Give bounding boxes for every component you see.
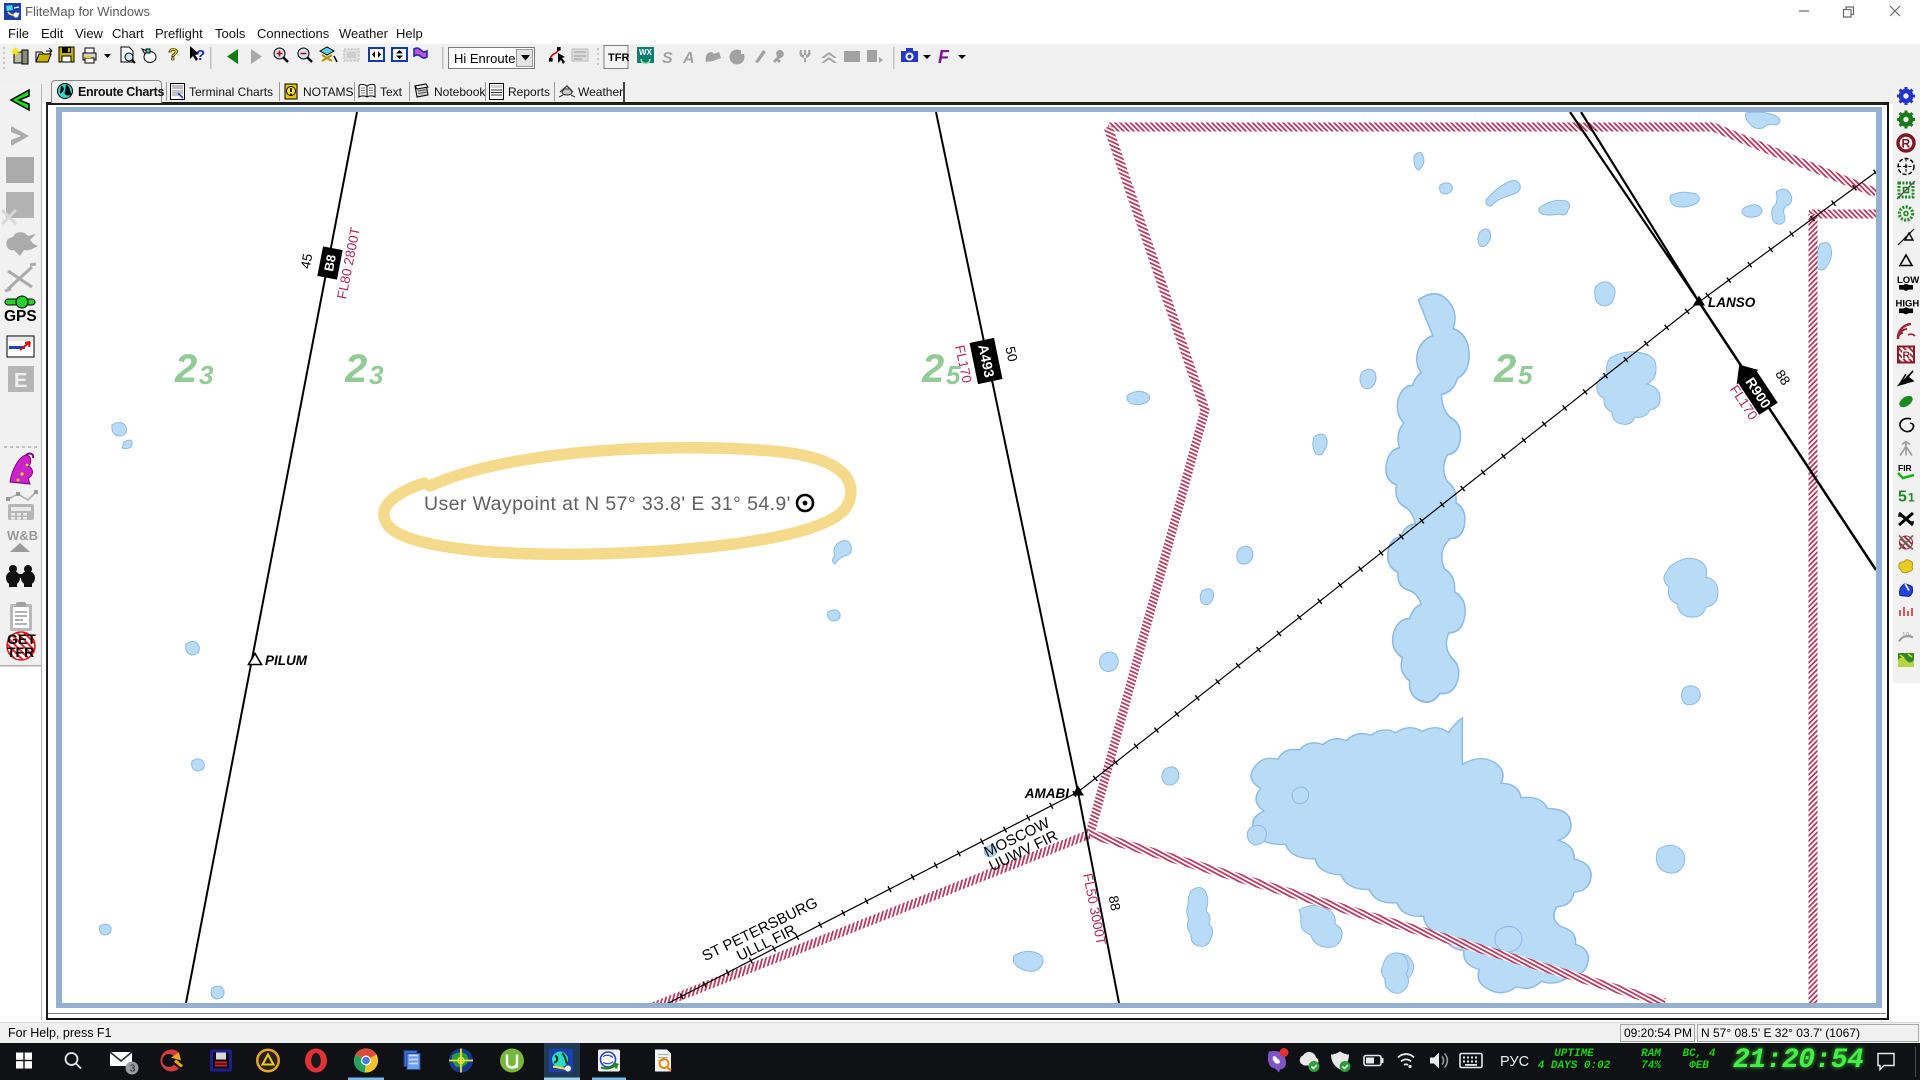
svg-text:TFR: TFR [7,644,34,660]
svg-text:W&B: W&B [7,528,38,543]
svg-text:FL50 3000T: FL50 3000T [1080,872,1109,946]
svg-text:5: 5 [946,360,961,390]
svg-text:GPS: GPS [4,308,37,325]
svg-text:E: E [14,370,27,392]
svg-text:3: 3 [199,360,214,390]
svg-text:10-: 10- [1902,632,1911,639]
svg-text:TFR: TFR [608,52,629,64]
svg-text:45: 45 [298,252,316,270]
svg-text:FIR: FIR [1898,463,1912,473]
svg-text:5: 5 [1518,360,1533,390]
svg-text:3: 3 [369,360,384,390]
svg-text:PILUM: PILUM [265,653,308,668]
svg-text:50: 50 [1003,345,1021,363]
svg-text:F: F [938,47,950,67]
svg-text:2: 2 [174,347,197,391]
svg-text:AMABI: AMABI [1024,786,1069,801]
svg-text:LANSO: LANSO [1708,295,1756,310]
svg-text:User Waypoint at N 57° 33.8' E: User Waypoint at N 57° 33.8' E 31° 54.9' [424,493,791,515]
svg-text:1: 1 [1908,491,1915,505]
svg-text:РУС: РУС [1500,1054,1529,1070]
svg-text:WX: WX [639,48,653,57]
svg-text:S: S [662,50,673,67]
svg-text:?: ? [168,45,178,64]
svg-text:2: 2 [1493,347,1516,391]
svg-text:?: ? [196,47,205,64]
svg-text:2: 2 [344,347,367,391]
svg-text:88: 88 [1106,894,1124,912]
svg-text:LOW: LOW [1897,275,1919,286]
svg-text:3: 3 [130,1064,136,1075]
svg-text:R: R [1902,137,1911,151]
svg-text:2: 2 [921,347,944,391]
svg-text:B8: B8 [321,253,339,272]
svg-text:R: R [1903,350,1911,362]
svg-text:88: 88 [1772,367,1793,388]
svg-text:5: 5 [1898,489,1907,506]
svg-text:A: A [682,50,695,67]
